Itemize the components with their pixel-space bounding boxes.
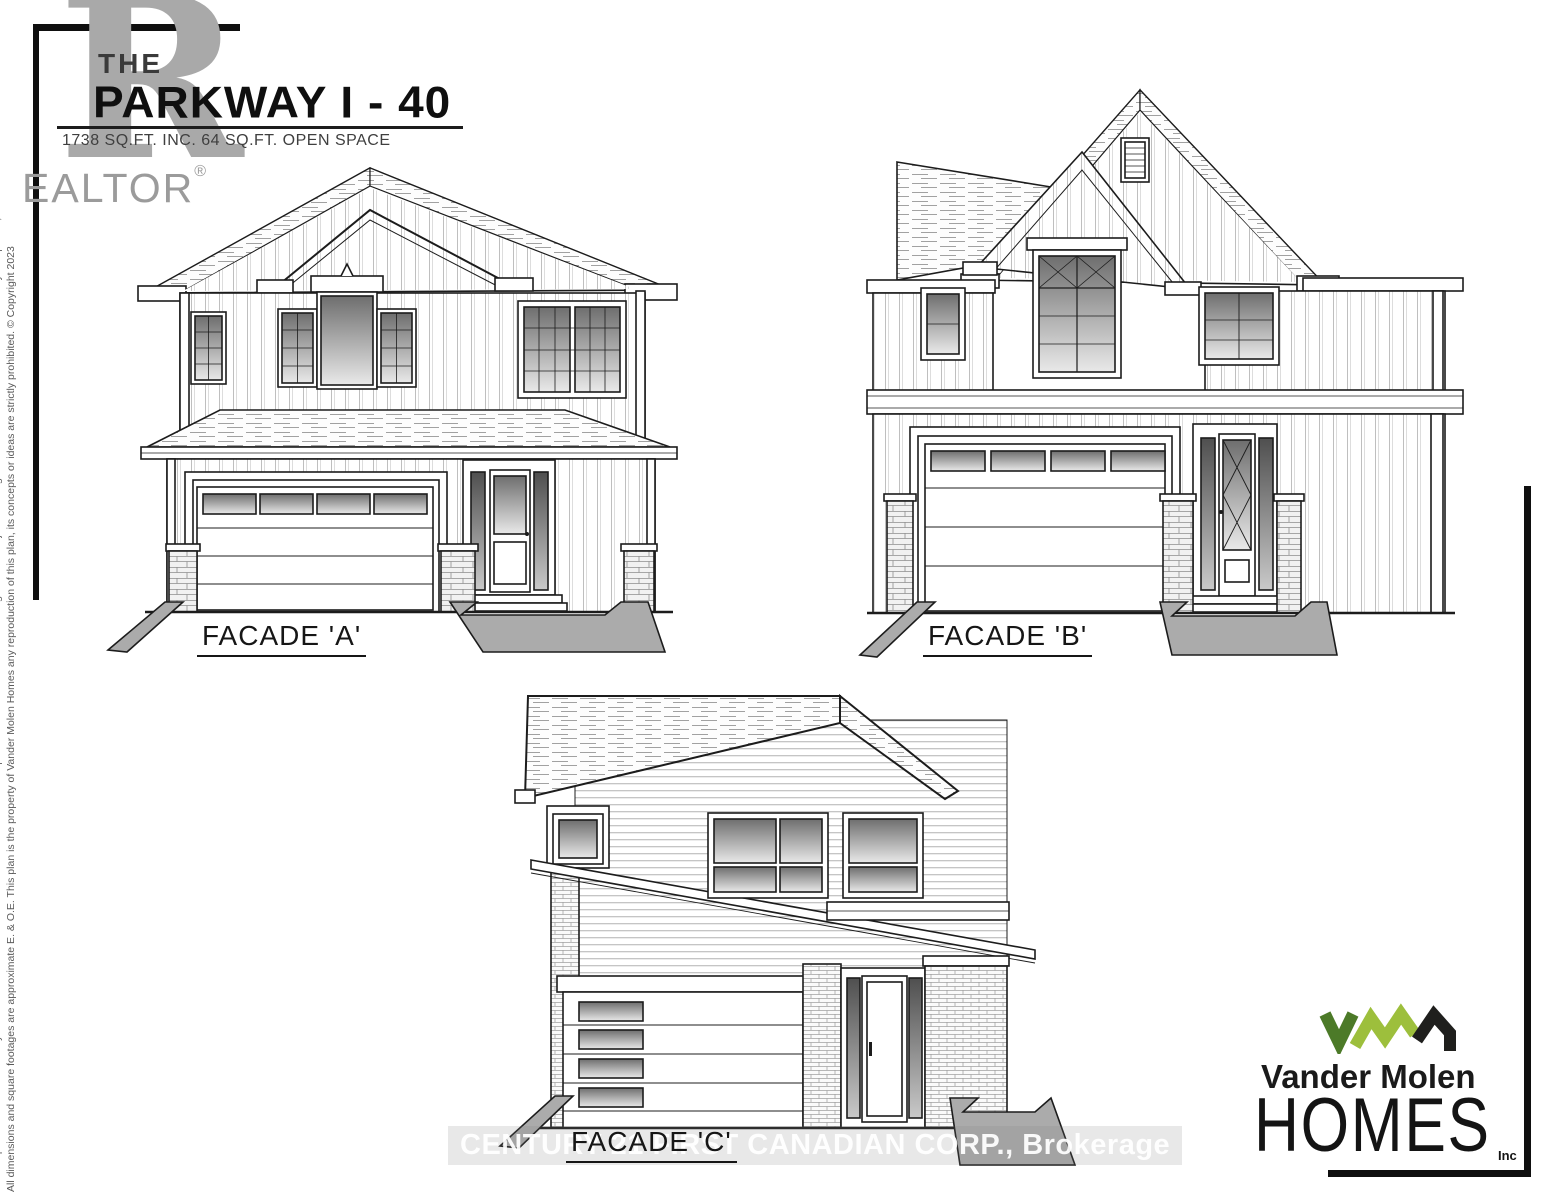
facade-b-gable-vent xyxy=(1121,138,1149,182)
facade-b-belt-band xyxy=(867,390,1463,414)
frame-bottom-bar xyxy=(1328,1170,1531,1177)
facade-a-garage-door xyxy=(185,472,447,612)
builder-inc-suffix: Inc xyxy=(1498,1148,1517,1163)
facade-b-right-window xyxy=(1199,287,1279,365)
title-underline xyxy=(57,126,463,129)
facade-b-center-window xyxy=(1027,238,1127,378)
disclaimer-line-2: All dimensions and square footages are a… xyxy=(5,246,17,1192)
builder-homes-wordmark: HOMES xyxy=(1254,1088,1491,1164)
facade-a-right-flank-window xyxy=(377,309,416,387)
realtor-logo-text: EALTOR® xyxy=(22,163,208,212)
facade-a-left-flank-window xyxy=(278,309,317,387)
frame-right-bar xyxy=(1524,486,1531,1177)
vmh-m-glyph xyxy=(1355,1014,1415,1046)
facade-a-left-driveway xyxy=(108,602,183,652)
facade-a-label: FACADE 'A' xyxy=(197,620,366,657)
vmh-logo-mark xyxy=(1318,1002,1468,1054)
facade-b-entry-door xyxy=(1182,424,1288,612)
facade-b-drawing xyxy=(855,82,1470,662)
facade-b-garage-door xyxy=(910,427,1180,613)
facade-c-entry-door xyxy=(841,968,925,1128)
facade-a-upper-left-window xyxy=(191,312,226,384)
facade-c-drawing xyxy=(495,678,1095,1173)
facade-b-left-window xyxy=(921,288,965,360)
facade-c-brick-pier xyxy=(803,964,841,1128)
facade-c-small-window xyxy=(547,806,609,868)
facade-a-center-window xyxy=(311,264,383,389)
vmh-v-glyph xyxy=(1325,1014,1353,1043)
facade-a-drawing xyxy=(105,160,680,660)
facade-b-label: FACADE 'B' xyxy=(923,620,1092,657)
facade-c-garage-door xyxy=(557,976,809,1128)
elevation-sheet: { "header": { "the_label": "THE", "title… xyxy=(0,0,1545,1200)
plan-subtitle: 1738 SQ.FT. INC. 64 SQ.FT. OPEN SPACE xyxy=(62,132,391,150)
brokerage-watermark: CENTURY 21 FIRST CANADIAN CORP., Brokera… xyxy=(448,1126,1182,1165)
facade-c-label: FACADE 'C' xyxy=(566,1126,737,1163)
plan-title: PARKWAY I - 40 xyxy=(93,76,451,128)
facade-a-right-double-window xyxy=(518,301,626,398)
facade-c-center-window xyxy=(708,813,828,898)
frame-left-bar xyxy=(33,24,39,600)
vmh-h-glyph xyxy=(1417,1015,1450,1051)
disclaimer-line-1: All floor plans and elevations maybe cus… xyxy=(0,105,3,1192)
registered-trademark-icon: ® xyxy=(194,163,208,180)
facade-c-right-window xyxy=(843,813,923,898)
realtor-wordmark: EALTOR xyxy=(22,165,194,211)
